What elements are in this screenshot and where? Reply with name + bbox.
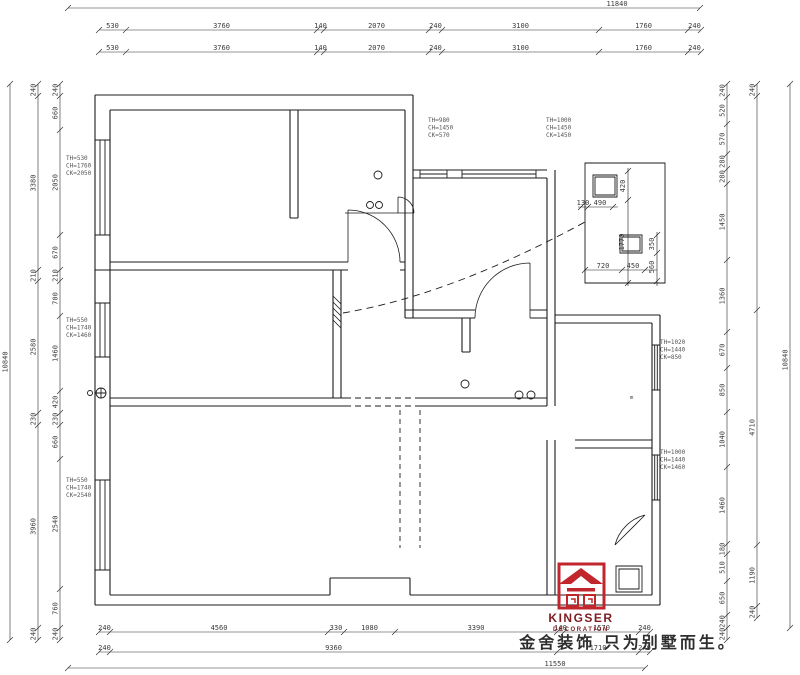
fixtures-layer: [88, 171, 643, 592]
dimension-chains-layer: 1184053037601402070240310017602405303760…: [2, 0, 794, 671]
dim-label: 240: [719, 84, 727, 97]
outer-walls: [95, 95, 660, 605]
window-tag: TH=1000CH=1450CK=1450: [546, 117, 572, 139]
window-tag: TH=550CH=1740CK=2540: [66, 477, 92, 499]
dim-label: 240: [429, 22, 442, 30]
dashed-route-curve: [343, 222, 585, 313]
dim-label: 280: [719, 155, 727, 168]
dim-label: 1460: [719, 497, 727, 514]
window-top-small: [420, 170, 447, 178]
dim-label: 330: [330, 624, 343, 632]
dim-label: 240: [638, 624, 651, 632]
dim-label: 240: [749, 606, 757, 619]
window-tag: TH=1000CH=1440CK=1460: [660, 449, 686, 471]
floor-plan-drawing: 1184053037601402070240310017602405303760…: [0, 0, 800, 675]
dashed-layer: [343, 222, 585, 548]
walls-layer: [95, 95, 660, 605]
dim-label: 1360: [719, 288, 727, 305]
window-right-upper: [652, 345, 660, 390]
dim-label: 670: [52, 246, 60, 259]
window-right-lower: [652, 455, 660, 500]
dim-label: 2070: [368, 44, 385, 52]
wall-hatch-section: [333, 296, 341, 328]
dim-label: 230: [52, 413, 60, 426]
dim-label: 700: [52, 292, 60, 305]
window-left-bottom: [95, 480, 110, 570]
stove-burner-left: [367, 202, 374, 209]
dim-label: 520: [719, 104, 727, 117]
dim-label: 3100: [512, 44, 529, 52]
pipe-fixture: [88, 391, 93, 396]
dim-label: 240: [429, 44, 442, 52]
window-left-top: [95, 140, 110, 235]
doors-layer: [345, 197, 645, 545]
dim-label: 10840: [782, 349, 790, 370]
dim-label: 240: [749, 84, 757, 97]
window-top-wide: [462, 170, 536, 178]
dim-label: 230: [30, 413, 38, 426]
bath-fixture: [461, 380, 469, 388]
dim-label: 3100: [512, 22, 529, 30]
brand-tagline: 金舍装饰 只为别墅而生。: [518, 633, 737, 652]
closet-box: [616, 566, 642, 592]
kingser-logo-block: KINGSER DECORATION 金舍装饰 只为别墅而生。: [518, 564, 737, 652]
dashed-wall-opening: [345, 398, 420, 406]
dim-label: 11840: [606, 0, 627, 8]
dim-label: 350: [648, 238, 656, 251]
room-label-m: m: [630, 395, 634, 401]
dim-label: 210: [52, 269, 60, 282]
dim-label: 240: [30, 628, 38, 641]
dim-label: 280: [719, 170, 727, 183]
dim-label: 3760: [213, 22, 230, 30]
dim-label: 670: [719, 344, 727, 357]
detail-unit-top: [593, 175, 617, 197]
stove-burner-right: [376, 202, 383, 209]
window-left-middle: [95, 303, 110, 357]
dim-label: 1190: [749, 567, 757, 584]
dim-label: 530: [106, 22, 119, 30]
dim-label: 850: [719, 384, 727, 397]
dim-label: 1080: [361, 624, 378, 632]
dim-label: 140: [314, 44, 327, 52]
dim-label: 1760: [635, 44, 652, 52]
dim-label: 660: [52, 107, 60, 120]
dim-label: 240: [98, 624, 111, 632]
dim-label: 650: [719, 592, 727, 605]
dim-label: 1460: [52, 345, 60, 362]
dim-label: 1770: [618, 234, 626, 251]
kingser-emblem-icon: [559, 564, 604, 608]
window-tag: TH=530CH=1760CK=2050: [66, 155, 92, 177]
dim-label: 4710: [749, 419, 757, 436]
dim-label: 1040: [719, 431, 727, 448]
dim-label: 450: [627, 262, 640, 270]
dim-label: 420: [619, 180, 627, 193]
dim-label: 9360: [325, 644, 342, 652]
dim-label: 510: [719, 561, 727, 574]
dim-label: 140: [314, 22, 327, 30]
dim-label: 210: [30, 269, 38, 282]
dim-label: 2540: [52, 516, 60, 533]
dim-label: 3960: [30, 518, 38, 535]
dim-label: 760: [52, 602, 60, 615]
dim-label: 240: [719, 615, 727, 628]
dim-label: 4560: [211, 624, 228, 632]
dim-label: 2070: [368, 22, 385, 30]
dim-label: 570: [719, 133, 727, 146]
brand-name: KINGSER: [548, 611, 613, 625]
dim-label: 1450: [719, 214, 727, 231]
dim-label: 10840: [2, 351, 10, 372]
dim-label: 240: [52, 84, 60, 97]
door-arc-corner: [615, 515, 645, 545]
dim-label: 3760: [213, 44, 230, 52]
dim-label: 560: [648, 261, 656, 274]
window-tag: TH=980CH=1450CK=570: [428, 117, 454, 139]
dim-label: 240: [52, 628, 60, 641]
interior-walls: [95, 110, 652, 448]
dim-label: 660: [52, 436, 60, 449]
window-tags-layer: TH=530CH=1760CK=2050TH=550CH=1740CK=1460…: [66, 117, 686, 499]
dashed-proposed-wall: [400, 410, 420, 548]
door-arc-living: [348, 210, 400, 262]
dim-label: 240: [688, 44, 701, 52]
dim-label: 3390: [468, 624, 485, 632]
dim-label: 420: [52, 396, 60, 409]
dim-label: 240: [688, 22, 701, 30]
window-tag: TH=550CH=1740CK=1460: [66, 317, 92, 339]
dim-label: 130: [577, 199, 590, 207]
dim-label: 3380: [30, 175, 38, 192]
dim-label: 180: [719, 543, 727, 556]
window-tag: TH=1020CH=1440CK=850: [660, 339, 686, 361]
dim-label: 1760: [635, 22, 652, 30]
dim-label: 2050: [52, 174, 60, 191]
floor-plan-document: 1184053037601402070240310017602405303760…: [0, 0, 800, 675]
dim-label: 11550: [544, 660, 565, 668]
windows-layer: [95, 140, 660, 570]
dim-label: 530: [106, 44, 119, 52]
dim-label: 720: [597, 262, 610, 270]
dim-label: 2580: [30, 339, 38, 356]
downlight-fixture: [374, 171, 382, 179]
dim-label: 240: [30, 84, 38, 97]
dim-label: 490: [594, 199, 607, 207]
dim-label: 240: [98, 644, 111, 652]
